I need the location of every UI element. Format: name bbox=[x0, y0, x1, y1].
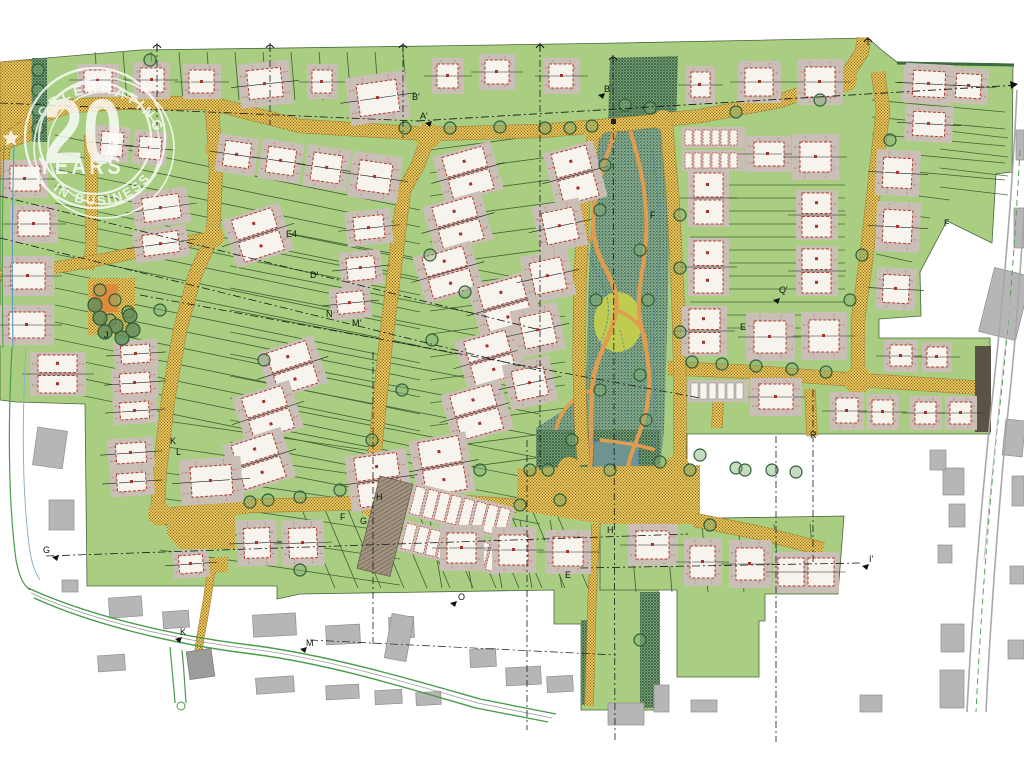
svg-text:K: K bbox=[170, 436, 176, 446]
svg-text:E: E bbox=[565, 570, 571, 580]
svg-text:N: N bbox=[326, 309, 333, 319]
svg-text:F: F bbox=[944, 218, 950, 228]
svg-text:R: R bbox=[810, 430, 817, 440]
svg-text:E: E bbox=[740, 322, 746, 332]
svg-text:O: O bbox=[458, 592, 465, 602]
svg-text:B': B' bbox=[412, 92, 420, 102]
svg-text:B`: B` bbox=[604, 84, 613, 94]
svg-text:Q': Q' bbox=[779, 285, 788, 295]
svg-text:E4: E4 bbox=[286, 229, 297, 239]
svg-text:I': I' bbox=[869, 554, 874, 564]
svg-text:J: J bbox=[104, 330, 109, 340]
svg-text:F: F bbox=[650, 210, 656, 220]
svg-text:G: G bbox=[43, 545, 50, 555]
svg-text:H': H' bbox=[607, 525, 615, 535]
svg-text:F: F bbox=[340, 512, 346, 522]
svg-text:H: H bbox=[376, 492, 383, 502]
svg-text:YEARS: YEARS bbox=[38, 153, 124, 180]
svg-text:G: G bbox=[360, 516, 367, 526]
svg-text:M: M bbox=[306, 638, 314, 648]
svg-text:L: L bbox=[176, 447, 181, 457]
svg-text:M': M' bbox=[352, 318, 361, 328]
svg-text:A': A' bbox=[420, 111, 428, 121]
svg-text:D': D' bbox=[310, 270, 318, 280]
svg-text:K: K bbox=[180, 627, 186, 637]
